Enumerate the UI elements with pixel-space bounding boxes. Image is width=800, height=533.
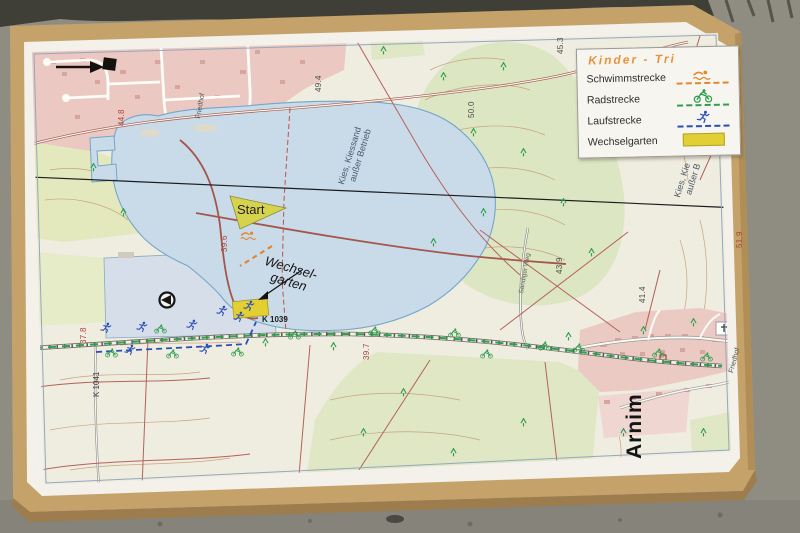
elevation-45-3: 45.3 xyxy=(557,37,566,54)
viewpoint-icon xyxy=(160,293,175,308)
elevation-39-7: 39.7 xyxy=(363,343,372,360)
map-board-photo: Kinder - Tri Schwimmstrecke Radstrecke L… xyxy=(0,0,800,533)
road-label-k1039: K 1039 xyxy=(262,316,288,325)
legend-item-laufstrecke: Laufstrecke xyxy=(587,107,731,131)
wechselgarten-swatch xyxy=(683,133,725,147)
cyclist-icon xyxy=(693,89,713,103)
elevation-51-9: 51.9 xyxy=(736,231,745,248)
start-label: Start xyxy=(237,203,264,217)
road-label-k1041: K 1041 xyxy=(93,372,102,397)
legend-label-run: Laufstrecke xyxy=(587,114,642,127)
town-label-arnim: Arnim xyxy=(623,393,646,459)
legend-label-transition: Wechselgarten xyxy=(588,135,658,148)
legend-item-schwimmstrecke: Schwimmstrecke xyxy=(586,65,730,89)
legend-label-bike: Radstrecke xyxy=(587,93,640,106)
runner-icon xyxy=(696,110,710,124)
elevation-39-6: 39.6 xyxy=(221,235,230,252)
legend-item-wechselgarten: Wechselgarten xyxy=(588,128,732,152)
elevation-43-9: 43.9 xyxy=(556,257,565,274)
elevation-37-8: 37.8 xyxy=(80,327,89,344)
legend-item-radstrecke: Radstrecke xyxy=(587,86,731,110)
legend-label-swim: Schwimmstrecke xyxy=(586,71,666,85)
bike-route-dash xyxy=(677,104,729,107)
elevation-50-0: 50.0 xyxy=(468,101,477,118)
run-route-dash xyxy=(677,125,729,128)
elevation-44-8: 44.8 xyxy=(118,109,127,126)
swimmer-icon xyxy=(692,69,712,81)
swim-route-dash xyxy=(677,82,729,85)
legend-box: Kinder - Tri Schwimmstrecke Radstrecke L… xyxy=(576,45,741,158)
elevation-41-4: 41.4 xyxy=(639,286,648,303)
elevation-49-4: 49.4 xyxy=(315,75,324,92)
event-title: Kinder - Tri xyxy=(588,50,730,67)
